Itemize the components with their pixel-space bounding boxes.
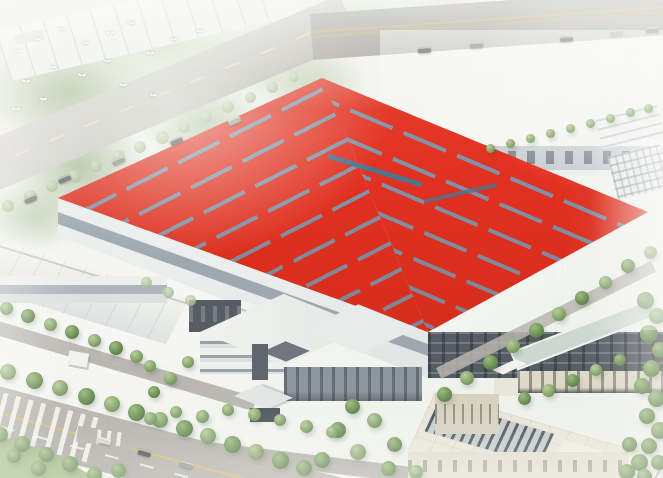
- bird: [196, 28, 204, 31]
- bird: [104, 58, 111, 61]
- bird: [22, 78, 30, 81]
- bird: [150, 92, 157, 95]
- bird: [170, 36, 177, 39]
- bird: [14, 48, 22, 51]
- bird: [58, 26, 66, 29]
- aerial-campus-rendering: [0, 0, 663, 478]
- bird: [128, 20, 135, 23]
- bird: [82, 40, 89, 43]
- bird: [106, 30, 114, 33]
- bird: [50, 64, 57, 67]
- bird: [12, 106, 20, 109]
- birds-layer: [0, 0, 663, 478]
- bird: [40, 96, 47, 99]
- bird: [146, 50, 154, 53]
- bird: [78, 72, 86, 75]
- bird: [120, 82, 127, 85]
- bird: [34, 36, 41, 39]
